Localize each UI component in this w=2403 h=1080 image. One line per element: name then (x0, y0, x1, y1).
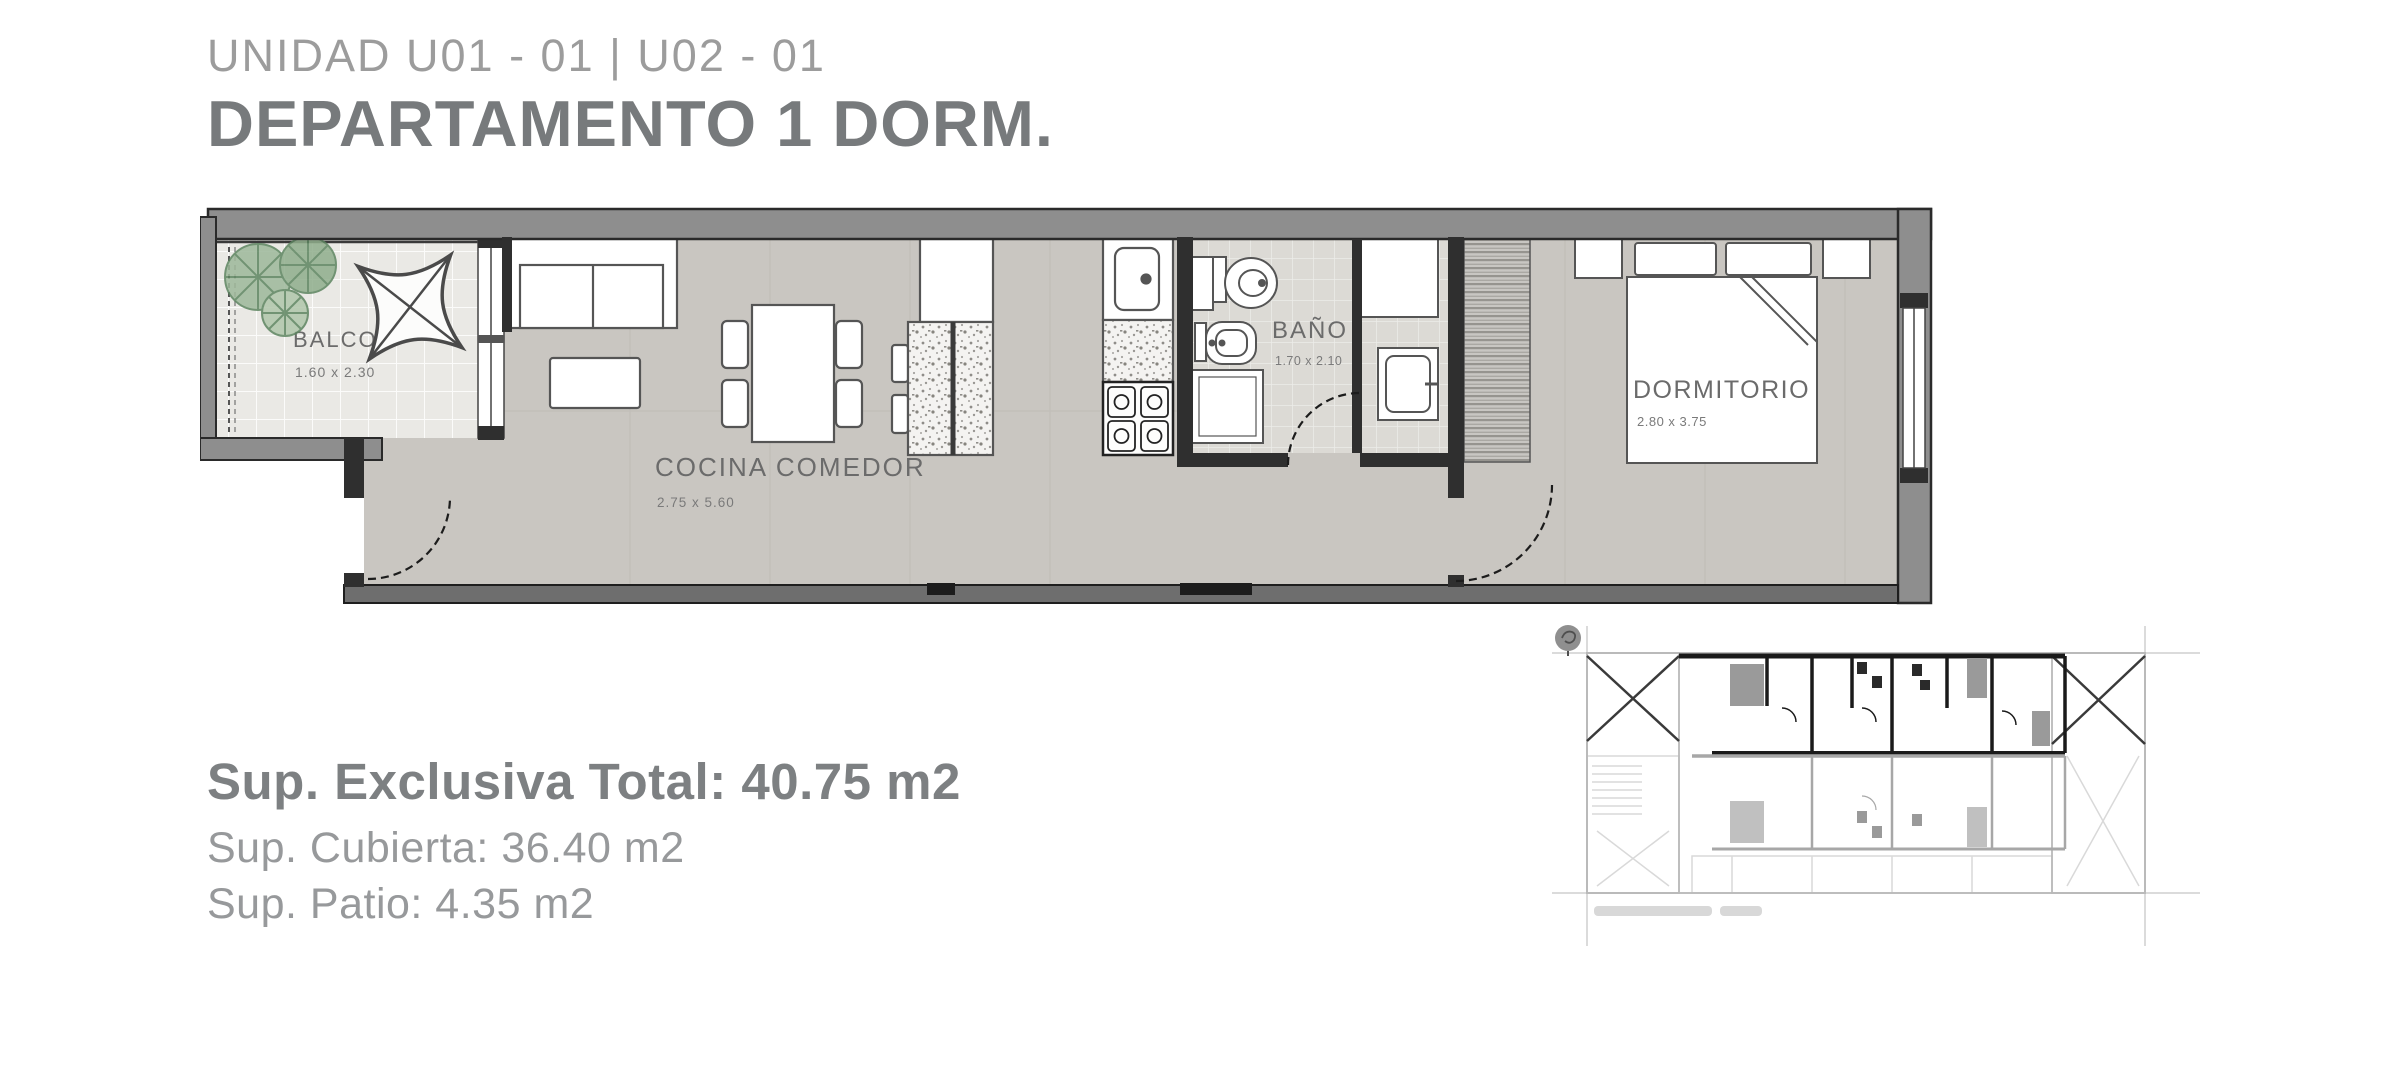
shower-tray (1192, 370, 1263, 443)
window (1900, 293, 1928, 483)
patio-area: Sup. Patio: 4.35 m2 (207, 877, 961, 933)
building-outline (1587, 653, 2145, 893)
pillow (1635, 243, 1716, 275)
page-title: DEPARTAMENTO 1 DORM. (207, 86, 1054, 161)
bed (1627, 243, 1817, 463)
room-dims-cocina: 2.75 x 5.60 (657, 495, 735, 510)
unit-code: UNIDAD U01 - 01 | U02 - 01 (207, 30, 1054, 82)
vanity (1192, 257, 1213, 310)
balcony-sliding-door (478, 239, 504, 440)
key-plan (1552, 616, 2200, 951)
sofa (505, 238, 677, 328)
stove (1103, 382, 1173, 455)
title-block: UNIDAD U01 - 01 | U02 - 01 DEPARTAMENTO … (207, 30, 1054, 161)
chair (722, 380, 748, 427)
room-label-cocina: COCINA COMEDOR (655, 452, 926, 482)
balcony-left-wall (200, 217, 216, 460)
floor-plan: BALCON 1.60 x 2.30 (200, 195, 1940, 605)
kitchen-counter (1103, 238, 1173, 455)
tree-icon (1555, 625, 1581, 656)
area-summary: Sup. Exclusiva Total: 40.75 m2 Sup. Cubi… (207, 752, 961, 933)
room-dims-bano: 1.70 x 2.10 (1275, 354, 1342, 368)
washer (1378, 348, 1438, 420)
total-area: Sup. Exclusiva Total: 40.75 m2 (207, 752, 961, 811)
room-label-dormitorio: DORMITORIO (1633, 376, 1810, 404)
dining-table (752, 305, 834, 442)
top-wall (208, 209, 1931, 239)
toilet (1213, 257, 1277, 308)
chair (836, 380, 862, 427)
chair (836, 321, 862, 368)
nightstand (1575, 238, 1622, 278)
pillow (1726, 243, 1811, 275)
room-dims-balcon: 1.60 x 2.30 (295, 364, 375, 380)
faded-unit (1692, 756, 2065, 849)
nightstand (1823, 238, 1870, 278)
bottom-wall (344, 585, 1898, 603)
stool (892, 345, 908, 382)
bidet (1195, 322, 1256, 364)
page: UNIDAD U01 - 01 | U02 - 01 DEPARTAMENTO … (0, 0, 2403, 1080)
closet (1360, 239, 1438, 317)
room-dims-dormitorio: 2.80 x 3.75 (1637, 414, 1707, 429)
covered-area: Sup. Cubierta: 36.40 m2 (207, 821, 961, 877)
room-label-bano: BAÑO (1272, 317, 1348, 344)
highlighted-unit (1679, 656, 2065, 753)
wardrobe (1464, 237, 1530, 462)
axis-lines (1552, 626, 2200, 946)
faint-floor (1587, 756, 2139, 893)
chair (722, 321, 748, 368)
keyplan-caption (1594, 906, 1762, 916)
bedroom: DORMITORIO 2.80 x 3.75 (1464, 237, 1870, 463)
unit-closets (1730, 658, 2050, 746)
stool (892, 395, 908, 433)
coffee-table (550, 358, 640, 408)
